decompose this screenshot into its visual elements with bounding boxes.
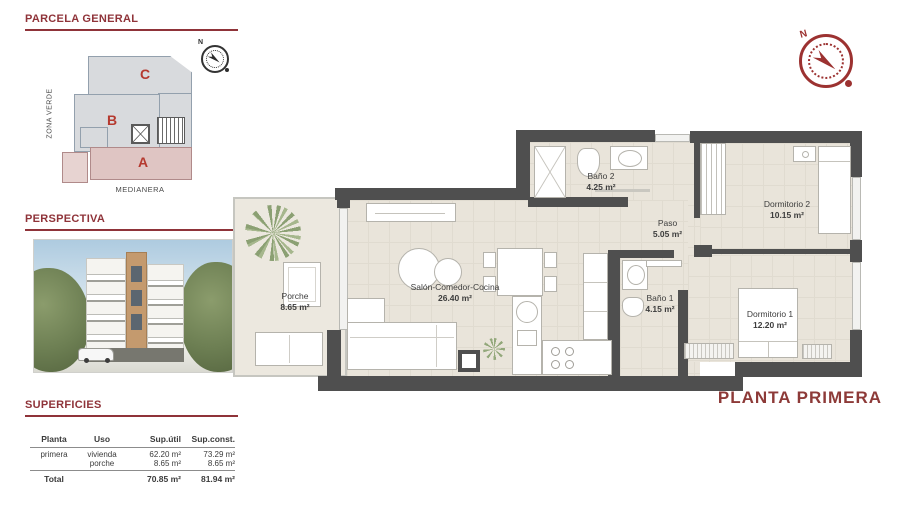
stove-burner [551, 347, 560, 356]
kitchen-column [583, 253, 608, 340]
cell-util-porche: 8.65 m² [126, 459, 181, 468]
window-paso-top [655, 134, 690, 142]
elevator-shaft [131, 124, 150, 144]
bed-pillow-divider [768, 341, 769, 357]
section-title-perspectiva: PERSPECTIVA [25, 213, 105, 225]
kitchen-sink-round [516, 301, 538, 323]
bed-pillow-line [819, 161, 850, 162]
compass-dot [845, 80, 852, 87]
total-label: Total [30, 470, 78, 484]
section-rule-perspectiva [25, 229, 238, 231]
wardrobe-dorm2 [700, 143, 726, 215]
label-porche: Porche 8.65 m² [263, 291, 327, 312]
balcony [87, 334, 125, 342]
site-block-b-label: B [107, 112, 117, 128]
superficies-table: Planta Uso Sup.útil Sup.const. primera v… [30, 434, 235, 484]
stove-burner [565, 360, 574, 369]
radiator-dorm1-right [802, 344, 832, 359]
cell-uso: vivienda porche [78, 450, 126, 468]
dining-chair [483, 252, 496, 268]
cell-sup-util: 62.20 m² 8.65 m² [126, 450, 181, 468]
label-salon: Salón-Comedor-Cocina 26.40 m² [393, 282, 517, 303]
window [131, 314, 142, 330]
sofa-arm-line [436, 325, 437, 367]
room-name: Porche [263, 291, 327, 302]
wall-right-upper [850, 131, 862, 177]
window-dorm1-right [852, 262, 861, 330]
room-area: 8.65 m² [263, 302, 327, 313]
tree-right [180, 262, 233, 372]
stairs [157, 117, 185, 144]
col-header-sup-util: Sup.útil [126, 434, 181, 448]
dining-chair [544, 252, 557, 268]
wall-top-bano2 [516, 130, 655, 142]
tv-cabinet [366, 203, 456, 222]
balcony [148, 280, 183, 287]
room-area: 4.15 m² [630, 304, 690, 315]
washbasin-bowl [627, 265, 645, 285]
radiator-dorm1-left [684, 343, 734, 359]
floorplan-sheet: PARCELA GENERAL C B A ZONA VERDE MEDIANE… [0, 0, 900, 506]
room-area: 12.20 m² [728, 320, 812, 331]
washbasin-bowl [618, 150, 642, 167]
porche-sofa [255, 332, 323, 366]
shower-screen-bano1 [646, 260, 682, 267]
label-dorm2: Dormitorio 2 10.15 m² [745, 199, 829, 220]
site-plan: C B A ZONA VERDE MEDIANERA N [0, 0, 250, 200]
compass-icon: N [795, 30, 859, 94]
pillar [458, 350, 480, 372]
small-plant [483, 338, 505, 360]
balcony [148, 299, 183, 306]
kitchen-sink-basin [517, 330, 537, 346]
label-dorm1: Dormitorio 1 12.20 m² [728, 309, 812, 330]
washbasin-bano2 [610, 146, 648, 170]
site-block-a-label: A [138, 154, 148, 170]
medianera-label: MEDIANERA [85, 185, 195, 194]
total-sup-util: 70.85 m² [126, 470, 181, 484]
compass-small-dot [225, 68, 229, 72]
site-block-a-annex [62, 152, 88, 183]
wall-dorm2-bottom [712, 249, 852, 254]
balcony [87, 314, 125, 322]
cell-planta: primera [30, 450, 78, 468]
nightstand-knob [802, 151, 809, 158]
section-title-superficies: SUPERFICIES [25, 399, 102, 411]
col-header-planta: Planta [30, 434, 78, 448]
stove-burner [551, 360, 560, 369]
shower-bano2 [534, 146, 566, 198]
bed-dorm2 [818, 146, 851, 234]
wall-dorm2-bottom-block [694, 245, 712, 257]
label-paso: Paso 5.05 m² [640, 218, 695, 239]
window [131, 266, 142, 282]
cell-uso-porche: porche [78, 459, 126, 468]
car-wheel [105, 358, 110, 363]
balcony [87, 274, 125, 282]
room-name: Salón-Comedor-Cocina [393, 282, 517, 293]
kitchen-counter-bottom [542, 340, 612, 375]
col-header-sup-const: Sup.const. [181, 434, 235, 448]
zona-verde-label: ZONA VERDE [47, 84, 54, 144]
wall-bano1-top [608, 250, 674, 258]
plan-title: PLANTA PRIMERA [715, 388, 885, 408]
cell-uso-vivienda: vivienda [78, 450, 126, 459]
compass-small-icon: N [198, 42, 232, 76]
site-block-c-label: C [140, 66, 150, 82]
label-bano2: Baño 2 4.25 m² [570, 171, 632, 192]
wall-porche-top-stub [337, 188, 350, 208]
porche-sofa-divider [289, 335, 290, 363]
car-wheel [84, 358, 89, 363]
room-name: Dormitorio 1 [728, 309, 812, 320]
wall-porche-bottom-stub [327, 330, 341, 377]
compass-n: N [799, 28, 809, 40]
palm-tree [245, 205, 301, 261]
window [131, 290, 142, 306]
room-area: 5.05 m² [640, 229, 695, 240]
wall-bottom-right [735, 362, 862, 377]
balcony [148, 318, 183, 325]
room-area: 10.15 m² [745, 210, 829, 221]
sofa-seat-line [350, 337, 454, 338]
site-block-b-annex [80, 127, 108, 148]
building-render [33, 239, 233, 373]
section-rule-superficies [25, 415, 238, 417]
wall-top-dorm2 [690, 131, 862, 143]
tv-cabinet-line [375, 213, 445, 214]
total-sup-const: 81.94 m² [181, 470, 235, 484]
kitchen-column-line [584, 311, 607, 312]
window-dorm2-right [852, 177, 861, 240]
sofa-seat [347, 322, 457, 370]
compass-small-n: N [198, 39, 203, 46]
nightstand-dorm2 [793, 146, 816, 162]
room-name: Dormitorio 2 [745, 199, 829, 210]
cell-const-vivienda: 73.29 m² [181, 450, 235, 459]
balcony [87, 294, 125, 302]
washbasin-bano1 [622, 260, 648, 290]
wall-bottom-main [318, 376, 743, 391]
cell-const-porche: 8.65 m² [181, 459, 235, 468]
col-header-uso: Uso [78, 434, 126, 448]
car [78, 348, 114, 361]
total-spacer [78, 470, 126, 484]
room-name: Paso [640, 218, 695, 229]
room-area: 4.25 m² [570, 182, 632, 193]
cell-sup-const: 73.29 m² 8.65 m² [181, 450, 235, 468]
balcony [148, 337, 183, 344]
room-name: Baño 2 [570, 171, 632, 182]
cell-util-vivienda: 62.20 m² [126, 450, 181, 459]
kitchen-column-line [584, 282, 607, 283]
room-area: 26.40 m² [393, 293, 517, 304]
stove-burner [565, 347, 574, 356]
dining-chair [544, 276, 557, 292]
label-bano1: Baño 1 4.15 m² [630, 293, 690, 314]
wall-top-salon [335, 188, 528, 200]
room-name: Baño 1 [630, 293, 690, 304]
